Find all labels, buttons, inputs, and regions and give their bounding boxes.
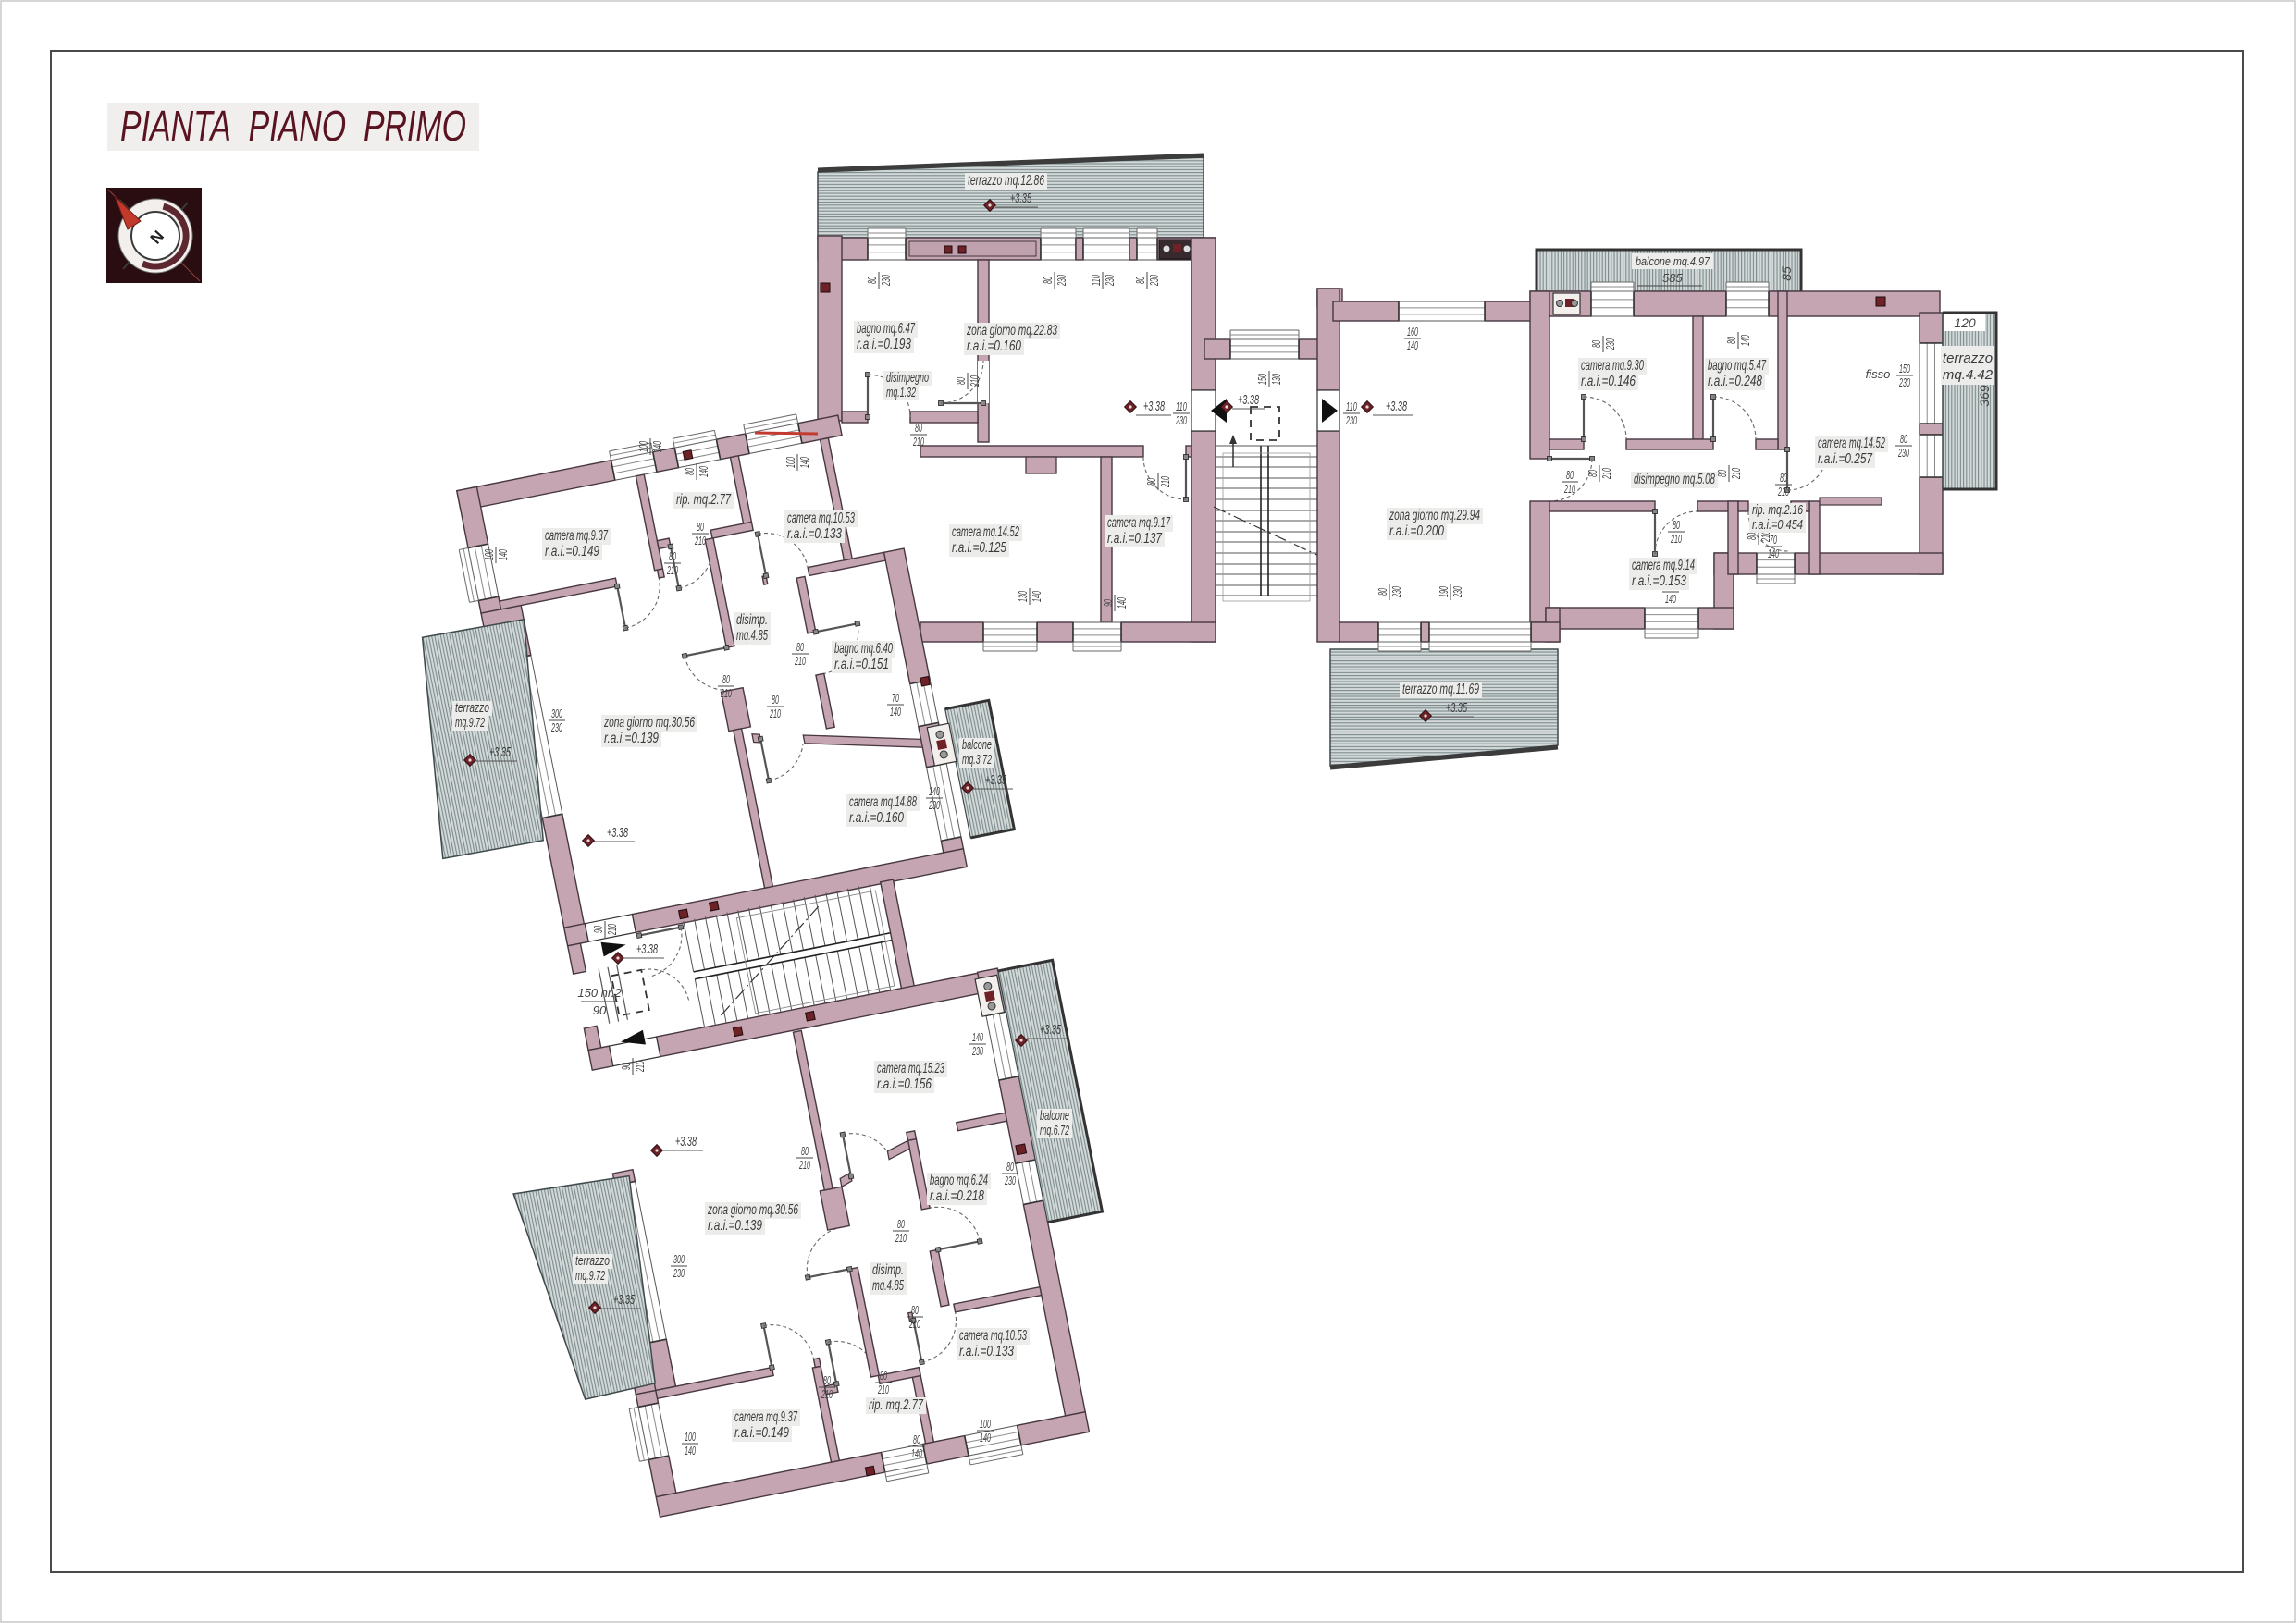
svg-text:230: 230	[1898, 375, 1910, 389]
svg-text:zona giorno mq.29.94: zona giorno mq.29.94	[1389, 508, 1480, 523]
svg-text:mq.9.72: mq.9.72	[575, 1268, 605, 1284]
svg-text:r.a.i.=0.139: r.a.i.=0.139	[708, 1218, 762, 1234]
svg-text:70: 70	[892, 691, 899, 705]
svg-text:disimpegno mq.5.08: disimpegno mq.5.08	[1634, 472, 1715, 487]
svg-text:r.a.i.=0.454: r.a.i.=0.454	[1752, 517, 1803, 533]
svg-text:80: 80	[823, 1373, 831, 1387]
svg-text:100: 100	[980, 1417, 991, 1431]
svg-text:r.a.i.=0.257: r.a.i.=0.257	[1818, 451, 1873, 467]
svg-text:210: 210	[794, 654, 806, 668]
svg-text:230: 230	[1147, 275, 1161, 287]
svg-text:r.a.i.=0.133: r.a.i.=0.133	[959, 1344, 1014, 1359]
svg-text:terrazzo: terrazzo	[455, 700, 489, 716]
svg-text:140: 140	[650, 441, 664, 452]
svg-text:140: 140	[890, 705, 901, 719]
svg-text:100: 100	[784, 457, 797, 468]
svg-text:+3.38: +3.38	[607, 825, 628, 841]
svg-text:210: 210	[769, 707, 781, 720]
svg-text:230: 230	[1450, 586, 1464, 598]
svg-text:r.a.i.=0.139: r.a.i.=0.139	[604, 731, 659, 746]
svg-text:210: 210	[798, 1158, 810, 1172]
svg-text:disimp.: disimp.	[736, 612, 768, 628]
svg-text:PIANTA PIANO PRIMO: PIANTA PIANO PRIMO	[120, 102, 466, 150]
svg-text:140: 140	[697, 466, 710, 477]
svg-text:130: 130	[1269, 374, 1283, 385]
svg-text:110: 110	[1176, 400, 1187, 413]
svg-text:300: 300	[673, 1252, 685, 1266]
svg-text:80: 80	[1586, 470, 1599, 477]
svg-text:camera mq.15.23: camera mq.15.23	[877, 1061, 944, 1076]
svg-text:bagno mq.6.47: bagno mq.6.47	[857, 321, 916, 337]
svg-text:110: 110	[1346, 400, 1357, 413]
svg-text:80: 80	[1006, 1160, 1014, 1174]
svg-text:80: 80	[1566, 468, 1574, 482]
svg-text:80: 80	[911, 1303, 919, 1317]
svg-text:mq.4.85: mq.4.85	[872, 1278, 904, 1294]
svg-text:80: 80	[1589, 340, 1603, 348]
svg-text:210: 210	[1670, 532, 1682, 546]
svg-text:230: 230	[1103, 275, 1117, 287]
svg-text:r.a.i.=0.248: r.a.i.=0.248	[1708, 374, 1762, 389]
svg-text:80: 80	[669, 549, 676, 563]
svg-text:80: 80	[683, 468, 697, 475]
svg-text:80: 80	[722, 672, 730, 686]
svg-text:230: 230	[879, 275, 893, 287]
svg-text:rip. mq.2.77: rip. mq.2.77	[676, 492, 732, 508]
svg-text:balcone: balcone	[1040, 1108, 1069, 1124]
svg-text:80: 80	[1133, 277, 1147, 284]
svg-text:140: 140	[685, 1444, 696, 1457]
svg-text:140: 140	[980, 1431, 991, 1445]
svg-text:camera mq.9.37: camera mq.9.37	[734, 1409, 798, 1425]
svg-text:140: 140	[972, 1030, 983, 1044]
svg-text:bagno mq.6.24: bagno mq.6.24	[930, 1173, 988, 1188]
svg-text:210: 210	[694, 534, 706, 547]
svg-text:r.a.i.=0.149: r.a.i.=0.149	[734, 1425, 789, 1441]
svg-text:+3.35: +3.35	[1040, 1022, 1061, 1038]
svg-text:r.a.i.=0.218: r.a.i.=0.218	[930, 1188, 984, 1204]
svg-text:r.a.i.=0.200: r.a.i.=0.200	[1389, 523, 1444, 539]
svg-text:230: 230	[1345, 413, 1357, 427]
svg-text:80: 80	[796, 640, 804, 654]
svg-text:+3.38: +3.38	[1238, 392, 1259, 408]
svg-text:80: 80	[1745, 533, 1759, 540]
svg-text:90: 90	[593, 1003, 607, 1017]
svg-text:130: 130	[1016, 591, 1030, 602]
svg-text:+3.38: +3.38	[675, 1134, 697, 1150]
svg-text:80: 80	[913, 1432, 920, 1446]
svg-text:210: 210	[1599, 468, 1613, 480]
svg-text:80: 80	[865, 277, 879, 284]
svg-text:terrazzo mq.11.69: terrazzo mq.11.69	[1402, 682, 1479, 697]
svg-text:80: 80	[1780, 471, 1787, 485]
svg-text:+3.35: +3.35	[613, 1292, 635, 1308]
svg-text:230: 230	[1603, 338, 1617, 350]
svg-text:terrazzo: terrazzo	[1943, 350, 1993, 366]
svg-text:r.a.i.=0.160: r.a.i.=0.160	[967, 338, 1021, 354]
svg-text:mq.3.72: mq.3.72	[962, 752, 992, 768]
svg-text:140: 140	[1115, 597, 1129, 609]
svg-text:90: 90	[591, 926, 605, 933]
svg-text:140: 140	[496, 549, 510, 560]
svg-text:210: 210	[877, 1383, 889, 1396]
svg-text:230: 230	[673, 1266, 685, 1280]
svg-text:369: 369	[1977, 385, 1992, 407]
svg-text:r.a.i.=0.149: r.a.i.=0.149	[545, 544, 599, 559]
svg-text:r.a.i.=0.146: r.a.i.=0.146	[1581, 374, 1636, 389]
svg-text:camera mq.9.14: camera mq.9.14	[1632, 558, 1695, 573]
svg-text:230: 230	[550, 720, 562, 734]
svg-text:balcone mq.4.97: balcone mq.4.97	[1636, 254, 1710, 268]
svg-text:80: 80	[1724, 337, 1738, 344]
svg-text:210: 210	[908, 1317, 920, 1331]
svg-text:camera mq.14.88: camera mq.14.88	[849, 794, 917, 810]
svg-text:camera mq.9.30: camera mq.9.30	[1581, 358, 1644, 374]
svg-text:230: 230	[1897, 446, 1909, 460]
svg-text:80: 80	[697, 520, 704, 534]
svg-text:210: 210	[720, 686, 732, 700]
svg-text:140: 140	[911, 1446, 922, 1460]
svg-text:80: 80	[1900, 432, 1907, 446]
svg-text:210: 210	[1729, 468, 1743, 480]
svg-text:zona giorno mq.22.83: zona giorno mq.22.83	[966, 323, 1057, 338]
svg-text:mq.4.42: mq.4.42	[1943, 367, 1994, 383]
svg-text:r.a.i.=0.156: r.a.i.=0.156	[877, 1076, 932, 1092]
svg-text:r.a.i.=0.133: r.a.i.=0.133	[787, 526, 842, 542]
svg-text:disimpegno: disimpegno	[886, 370, 929, 386]
svg-text:585: 585	[1662, 271, 1683, 285]
svg-text:camera mq.14.52: camera mq.14.52	[952, 524, 1019, 540]
svg-text:230: 230	[1175, 413, 1187, 427]
svg-text:100: 100	[636, 441, 650, 452]
svg-text:210: 210	[895, 1231, 907, 1245]
svg-text:bagno mq.6.40: bagno mq.6.40	[834, 641, 893, 657]
svg-text:90: 90	[619, 1063, 633, 1070]
svg-text:+3.38: +3.38	[636, 941, 658, 957]
svg-text:210: 210	[1158, 476, 1172, 488]
svg-text:rip. mq.2.77: rip. mq.2.77	[869, 1397, 924, 1413]
svg-text:80: 80	[801, 1144, 809, 1158]
svg-text:r.a.i.=0.137: r.a.i.=0.137	[1107, 531, 1163, 547]
svg-text:210: 210	[605, 924, 619, 936]
svg-text:140: 140	[929, 784, 940, 798]
svg-text:camera mq.9.37: camera mq.9.37	[545, 528, 609, 544]
svg-text:190: 190	[1437, 586, 1450, 597]
svg-text:210: 210	[1563, 482, 1575, 496]
svg-text:+3.35: +3.35	[1446, 700, 1467, 716]
svg-text:+3.38: +3.38	[1386, 399, 1407, 414]
svg-text:camera mq.14.52: camera mq.14.52	[1818, 436, 1885, 451]
svg-text:80: 80	[880, 1369, 887, 1383]
svg-text:210: 210	[1777, 485, 1789, 498]
svg-text:100: 100	[482, 549, 496, 560]
svg-text:+3.38: +3.38	[1143, 399, 1165, 414]
svg-text:mq.4.85: mq.4.85	[736, 628, 768, 644]
svg-text:80: 80	[954, 377, 968, 385]
svg-text:terrazzo mq.12.86: terrazzo mq.12.86	[968, 173, 1044, 189]
svg-text:camera mq.9.17: camera mq.9.17	[1107, 515, 1171, 531]
svg-text:zona giorno mq.30.56: zona giorno mq.30.56	[707, 1202, 798, 1218]
svg-text:230: 230	[928, 798, 940, 812]
svg-text:140: 140	[1407, 338, 1418, 352]
svg-text:80: 80	[915, 421, 922, 435]
svg-text:80: 80	[772, 693, 779, 707]
svg-text:210: 210	[633, 1061, 647, 1073]
svg-text:bagno mq.5.47: bagno mq.5.47	[1708, 358, 1767, 374]
svg-text:120: 120	[1954, 315, 1976, 330]
svg-text:210: 210	[666, 563, 678, 577]
svg-text:mq.9.72: mq.9.72	[455, 715, 485, 731]
svg-text:80: 80	[1376, 588, 1389, 596]
svg-text:300: 300	[551, 707, 562, 720]
svg-text:fisso: fisso	[1866, 367, 1891, 381]
svg-text:mq.6.72: mq.6.72	[1040, 1123, 1069, 1138]
svg-text:zona giorno mq.30.56: zona giorno mq.30.56	[603, 715, 695, 731]
svg-text:230: 230	[1055, 275, 1068, 287]
svg-text:terrazzo: terrazzo	[575, 1253, 610, 1269]
svg-text:balcone: balcone	[962, 737, 992, 753]
svg-text:camera mq.10.53: camera mq.10.53	[787, 510, 855, 526]
svg-text:230: 230	[971, 1044, 983, 1058]
svg-text:+3.35: +3.35	[985, 772, 1006, 788]
svg-text:210: 210	[821, 1387, 833, 1401]
svg-text:150: 150	[1255, 374, 1269, 385]
svg-text:150 nr.2: 150 nr.2	[577, 986, 622, 1000]
svg-text:r.a.i.=0.125: r.a.i.=0.125	[952, 540, 1006, 556]
svg-text:camera mq.10.53: camera mq.10.53	[959, 1328, 1027, 1344]
svg-text:+3.35: +3.35	[489, 744, 511, 760]
svg-text:140: 140	[1738, 335, 1752, 346]
svg-text:150: 150	[1899, 362, 1910, 375]
svg-text:85: 85	[1779, 266, 1794, 281]
svg-text:r.a.i.=0.193: r.a.i.=0.193	[857, 337, 911, 352]
svg-text:r.a.i.=0.160: r.a.i.=0.160	[849, 810, 904, 826]
svg-text:80: 80	[897, 1217, 905, 1231]
svg-text:140: 140	[1665, 592, 1676, 606]
svg-text:140: 140	[797, 457, 811, 468]
svg-text:mq.1.32: mq.1.32	[886, 385, 916, 400]
svg-text:230: 230	[1389, 586, 1403, 598]
svg-text:80: 80	[1673, 518, 1680, 532]
svg-text:80: 80	[1041, 277, 1055, 284]
svg-text:160: 160	[1407, 325, 1418, 338]
svg-text:disimp.: disimp.	[872, 1262, 904, 1278]
svg-text:+3.35: +3.35	[1010, 191, 1031, 206]
svg-text:r.a.i.=0.153: r.a.i.=0.153	[1632, 573, 1686, 589]
svg-text:210: 210	[968, 375, 981, 387]
svg-text:230: 230	[1004, 1174, 1016, 1187]
svg-text:100: 100	[685, 1430, 696, 1444]
svg-text:90: 90	[1101, 599, 1115, 607]
svg-text:110: 110	[1089, 275, 1103, 286]
svg-text:80: 80	[1144, 478, 1158, 486]
svg-text:140: 140	[1030, 591, 1043, 602]
svg-text:r.a.i.=0.151: r.a.i.=0.151	[834, 657, 889, 672]
svg-text:rip. mq.2.16: rip. mq.2.16	[1752, 502, 1803, 518]
